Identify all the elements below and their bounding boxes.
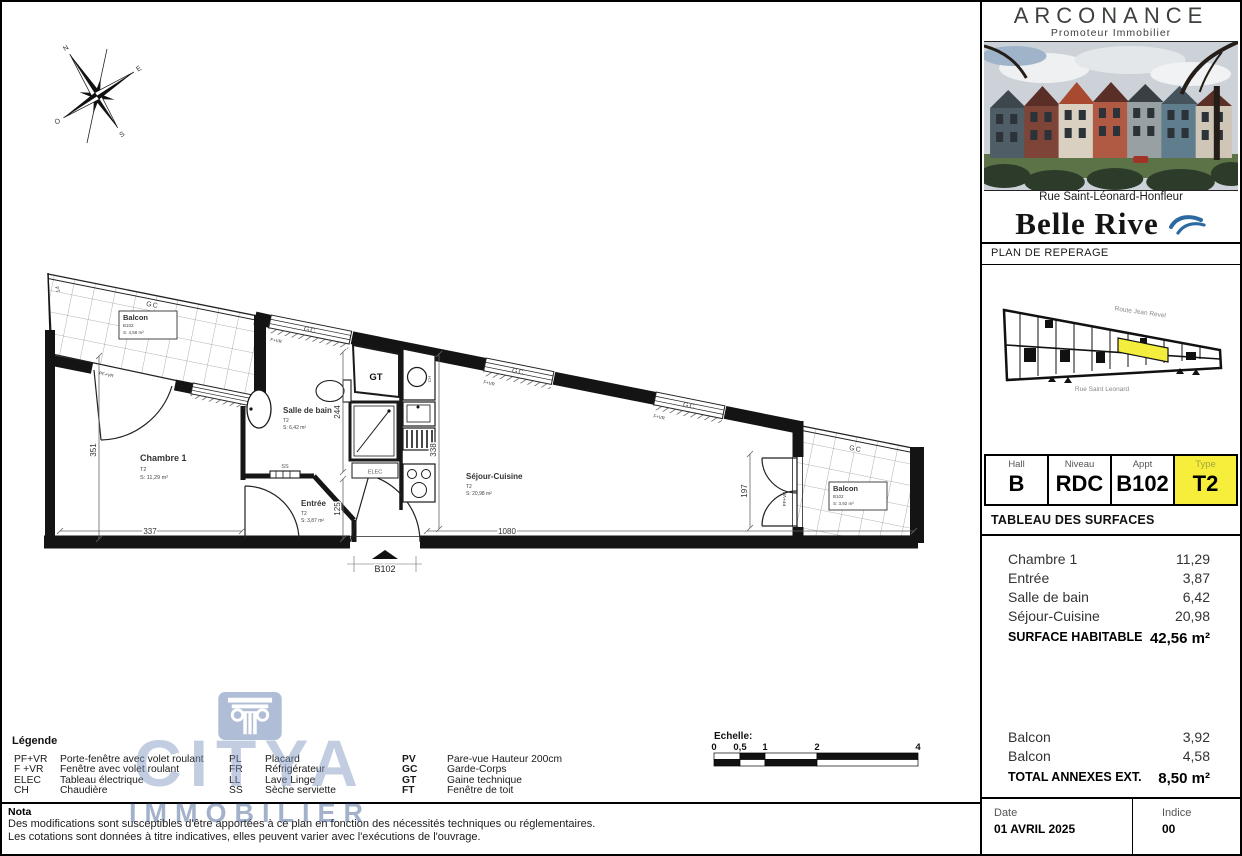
unit-cell-value: RDC bbox=[1049, 471, 1110, 497]
elec-label: ELEC bbox=[368, 470, 382, 476]
surface-row: Chambre 111,29 bbox=[1008, 550, 1210, 569]
surface-total-row: SURFACE HABITABLE42,56 m² bbox=[1008, 630, 1210, 647]
date-block: Date 01 AVRIL 2025 bbox=[994, 807, 1075, 836]
svg-text:Chambre 1: Chambre 1 bbox=[140, 453, 187, 463]
pfvr-label: PF+VR bbox=[782, 491, 787, 506]
date-value: 01 AVRIL 2025 bbox=[994, 822, 1075, 836]
surface-total-value: 42,56 m² bbox=[1150, 630, 1210, 647]
developer-tagline: Promoteur Immobilier bbox=[982, 27, 1240, 39]
legend-column-3: PVPare-vue Hauteur 200cm GCGarde-Corps G… bbox=[402, 755, 562, 797]
window-2: GC F+VR bbox=[481, 358, 554, 398]
surface-value: 20,98 bbox=[1175, 607, 1210, 626]
fixtures bbox=[247, 345, 435, 502]
room-label-chambre: Chambre 1 T2 S: 11,29 m² bbox=[140, 453, 187, 481]
nota-box: Nota Des modifications sont susceptibles… bbox=[2, 802, 980, 856]
surface-value: 3,87 bbox=[1183, 569, 1210, 588]
annex-label: Balcon bbox=[1008, 728, 1051, 747]
annex-row: Balcon3,92 bbox=[1008, 728, 1210, 747]
street-top-label: Route Jean Revel bbox=[1114, 305, 1167, 319]
legend-title: Légende bbox=[12, 735, 732, 747]
legend-column-2: PLPlacard FRRéfrigérateur LLLave Linge S… bbox=[229, 755, 336, 797]
indice-value: 00 bbox=[1162, 822, 1191, 836]
surface-row: Salle de bain6,42 bbox=[1008, 588, 1210, 607]
svg-text:T2: T2 bbox=[301, 511, 307, 517]
room-label-balcon-left: Balcon B102 S: 4,58 m² bbox=[119, 311, 177, 339]
svg-text:244: 244 bbox=[333, 405, 342, 419]
location-mini-map: Route Jean Revel Rue Saint Leonard bbox=[990, 290, 1234, 400]
svg-text:Salle de bain: Salle de bain bbox=[283, 406, 332, 415]
surface-label: Chambre 1 bbox=[1008, 550, 1077, 569]
svg-text:197: 197 bbox=[740, 484, 749, 498]
svg-text:351: 351 bbox=[89, 443, 98, 457]
window-3: GC F+VR bbox=[651, 392, 725, 432]
svg-text:B102: B102 bbox=[123, 323, 134, 328]
scale-tick: 4 bbox=[915, 742, 921, 753]
gt-label: GT bbox=[369, 372, 382, 383]
unit-cell-value: B102 bbox=[1112, 471, 1173, 497]
svg-text:125: 125 bbox=[333, 502, 342, 516]
nota-line-1: Des modifications sont susceptibles d'êt… bbox=[8, 818, 980, 831]
annex-total-value: 8,50 m² bbox=[1158, 770, 1210, 787]
ss-label: SS bbox=[281, 464, 289, 470]
residence-name: Belle Rive bbox=[1015, 206, 1158, 242]
annex-label: Balcon bbox=[1008, 747, 1051, 766]
entry-marker: B102 bbox=[372, 550, 398, 574]
building-photo bbox=[984, 41, 1238, 191]
surface-label: Entrée bbox=[1008, 569, 1049, 588]
svg-text:T2: T2 bbox=[466, 484, 472, 490]
legend-abbr: FT bbox=[402, 786, 447, 796]
unit-cell-label: Appt bbox=[1112, 459, 1173, 470]
svg-text:B102: B102 bbox=[374, 564, 395, 574]
room-label-sejour: Séjour-Cuisine T2 S: 20,98 m² bbox=[466, 472, 523, 497]
scale-bar: Echelle: 0 0,5 1 2 4 bbox=[711, 731, 921, 766]
legend-column-1: PF+VRPorte-fenêtre avec volet roulant F … bbox=[14, 755, 204, 797]
unit-identity-table: Hall B Niveau RDC Appt B102 Type T2 bbox=[984, 454, 1238, 506]
surface-value: 11,29 bbox=[1176, 550, 1210, 569]
street-caption: Rue Saint-Léonard-Honfleur bbox=[982, 191, 1240, 203]
plan-reperage-label: PLAN DE REPERAGE bbox=[991, 247, 1109, 259]
room-label-balcon-right: Balcon B102 S: 3,92 m² bbox=[829, 482, 887, 510]
gt-duct bbox=[353, 345, 399, 397]
window-1: GC F+VR bbox=[266, 315, 352, 357]
residence-title-row: Belle Rive bbox=[982, 205, 1240, 244]
svg-text:T2: T2 bbox=[140, 467, 146, 473]
legend-abbr: CH bbox=[14, 786, 60, 796]
floor-plan: GC F+VR GC F+VR GC F+VR bbox=[2, 2, 982, 792]
fvr-label: F+VR bbox=[653, 413, 666, 420]
unit-cell-label: Niveau bbox=[1049, 459, 1110, 470]
title-block-footer: Date 01 AVRIL 2025 Indice 00 bbox=[982, 797, 1240, 854]
unit-cell-label: Hall bbox=[986, 459, 1047, 470]
divider bbox=[1132, 799, 1133, 854]
surfaces-title: TABLEAU DES SURFACES bbox=[991, 513, 1155, 527]
svg-text:Balcon: Balcon bbox=[833, 484, 858, 493]
annex-row: Balcon4,58 bbox=[1008, 747, 1210, 766]
plan-sheet: N E S O bbox=[0, 0, 1242, 856]
legend: Légende PF+VRPorte-fenêtre avec volet ro… bbox=[12, 735, 732, 747]
unit-cell-hall: Hall B bbox=[986, 456, 1049, 504]
legend-desc: Sèche serviette bbox=[265, 786, 336, 796]
legend-desc: Chaudière bbox=[60, 786, 108, 796]
nota-title: Nota bbox=[8, 806, 980, 818]
surface-row: Séjour-Cuisine20,98 bbox=[1008, 607, 1210, 626]
fvr-label: F+VR bbox=[270, 337, 283, 344]
svg-text:S: 11,29 m²: S: 11,29 m² bbox=[140, 475, 168, 481]
indice-block: Indice 00 bbox=[1162, 807, 1191, 836]
date-label: Date bbox=[994, 807, 1075, 819]
surface-label: Salle de bain bbox=[1008, 588, 1089, 607]
ch-label: CH bbox=[427, 376, 432, 383]
svg-text:338: 338 bbox=[429, 443, 438, 457]
wc-bowl bbox=[316, 381, 344, 402]
balcony-right bbox=[797, 425, 920, 536]
legend-desc: Fenêtre de toit bbox=[447, 786, 513, 796]
developer-name: ARCONANCE bbox=[982, 3, 1240, 29]
surface-value: 6,42 bbox=[1183, 588, 1210, 607]
annex-total-label: TOTAL ANNEXES EXT. bbox=[1008, 770, 1142, 787]
svg-text:S: 4,58 m²: S: 4,58 m² bbox=[123, 330, 144, 335]
divider bbox=[982, 534, 1240, 536]
unit-cell-type: Type T2 bbox=[1175, 456, 1236, 504]
unit-cell-value: T2 bbox=[1175, 471, 1236, 497]
annex-value: 4,58 bbox=[1183, 747, 1210, 766]
title-block-sidebar: ARCONANCE Promoteur Immobilier bbox=[980, 2, 1240, 854]
annex-total-row: TOTAL ANNEXES EXT.8,50 m² bbox=[1008, 770, 1210, 787]
towel-radiator bbox=[270, 471, 300, 478]
svg-text:B102: B102 bbox=[833, 494, 844, 499]
surface-label: Séjour-Cuisine bbox=[1008, 607, 1100, 626]
svg-text:Entrée: Entrée bbox=[301, 499, 326, 508]
unit-cell-value: B bbox=[986, 471, 1047, 497]
room-label-salle-de-bain: Salle de bain T2 S: 6,42 m² bbox=[283, 406, 332, 431]
unit-cell-niveau: Niveau RDC bbox=[1049, 456, 1112, 504]
divider bbox=[982, 264, 1240, 265]
legend-abbr: SS bbox=[229, 786, 265, 796]
indice-label: Indice bbox=[1162, 807, 1191, 819]
svg-text:T2: T2 bbox=[283, 418, 289, 424]
surface-total-label: SURFACE HABITABLE bbox=[1008, 630, 1143, 647]
annex-value: 3,92 bbox=[1183, 728, 1210, 747]
unit-cell-label: Type bbox=[1175, 459, 1236, 470]
svg-text:337: 337 bbox=[143, 527, 157, 536]
wave-icon bbox=[1167, 211, 1207, 237]
surfaces-table: Chambre 111,29 Entrée3,87 Salle de bain6… bbox=[1008, 550, 1210, 647]
room-label-entree: Entrée T2 S: 3,87 m² bbox=[301, 499, 326, 524]
svg-text:S: 6,42 m²: S: 6,42 m² bbox=[283, 425, 306, 431]
annex-table: Balcon3,92 Balcon4,58 TOTAL ANNEXES EXT.… bbox=[1008, 728, 1210, 787]
street-bottom-label: Rue Saint Leonard bbox=[1075, 386, 1130, 393]
scale-tick: 0,5 bbox=[733, 742, 747, 753]
surface-row: Entrée3,87 bbox=[1008, 569, 1210, 588]
svg-text:1080: 1080 bbox=[498, 527, 516, 536]
svg-text:S: 3,92 m²: S: 3,92 m² bbox=[833, 501, 854, 506]
svg-text:S: 20,98 m²: S: 20,98 m² bbox=[466, 491, 492, 497]
svg-text:S: 3,87 m²: S: 3,87 m² bbox=[301, 518, 324, 524]
fvr-label: F+VR bbox=[483, 379, 496, 386]
svg-text:Séjour-Cuisine: Séjour-Cuisine bbox=[466, 472, 523, 481]
unit-cell-appt: Appt B102 bbox=[1112, 456, 1175, 504]
scale-tick: 1 bbox=[762, 742, 768, 753]
car bbox=[1133, 156, 1148, 163]
pfvr-label: PF+VR bbox=[99, 371, 115, 379]
scale-tick: 2 bbox=[814, 742, 819, 753]
nota-line-2: Les cotations sont données à titre indic… bbox=[8, 831, 980, 844]
svg-text:Balcon: Balcon bbox=[123, 313, 148, 322]
